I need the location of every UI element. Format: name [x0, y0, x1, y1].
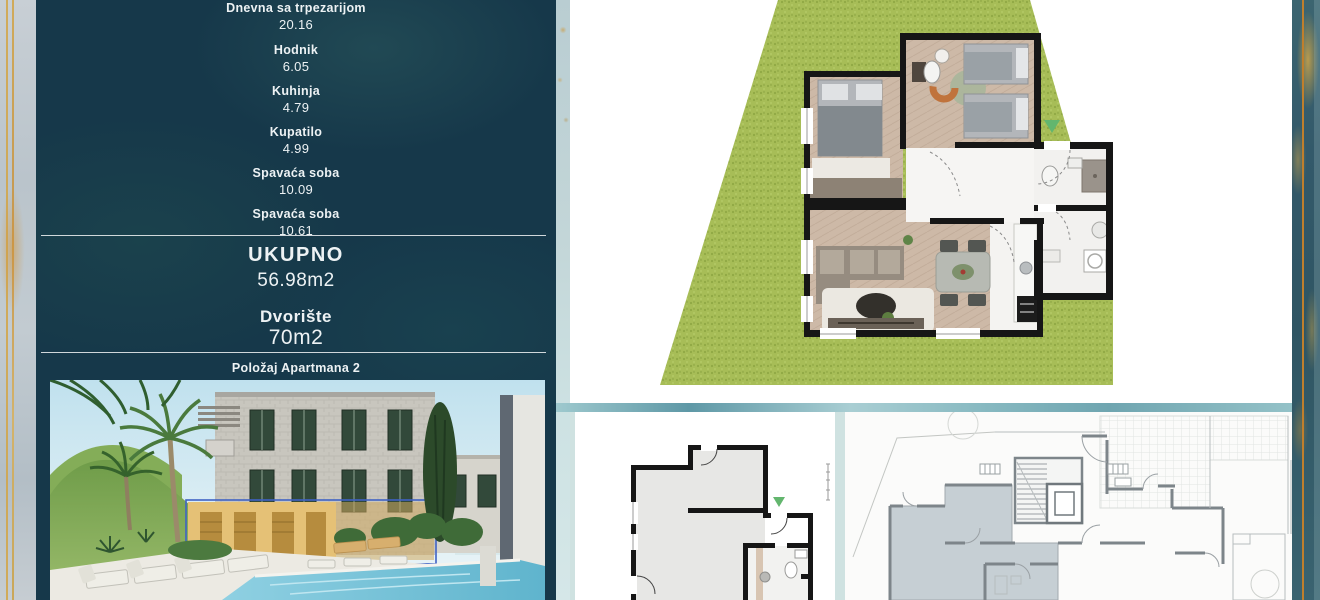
divider	[41, 235, 546, 236]
site-plan-panel	[570, 0, 1292, 403]
room-row: Spavaća soba 10.61	[36, 208, 556, 237]
background-texture-strip	[556, 0, 570, 600]
room-row: Spavaća soba 10.09	[36, 167, 556, 196]
room-area-value: 20.16	[36, 18, 556, 31]
total-value: 56.98m2	[36, 270, 556, 292]
room-label: Kupatilo	[36, 126, 556, 139]
shrub	[168, 540, 232, 560]
teal-divider-band	[556, 403, 1293, 412]
room-area-value: 10.09	[36, 183, 556, 196]
building-plan-panel	[845, 412, 1293, 600]
stair-core	[1015, 458, 1082, 523]
left-marble-border	[0, 0, 36, 600]
divider	[41, 352, 546, 353]
gold-line	[1302, 0, 1304, 600]
room-row: Kuhinja 4.79	[36, 85, 556, 114]
right-marble-border	[1292, 0, 1320, 600]
gold-flecks	[556, 0, 570, 160]
pool-pillar	[480, 546, 496, 586]
border-edge-highlight	[1314, 0, 1320, 600]
balcony	[206, 440, 234, 456]
room-label: Spavaća soba	[36, 167, 556, 180]
room-area-value: 6.05	[36, 60, 556, 73]
building-render-image	[50, 380, 545, 600]
room-label: Spavaća soba	[36, 208, 556, 221]
room-row: Kupatilo 4.99	[36, 126, 556, 155]
unit-outline-panel	[575, 412, 835, 600]
yard-value: 70m2	[36, 326, 556, 350]
total-label: UKUPNO	[36, 244, 556, 267]
room-area-value: 4.79	[36, 101, 556, 114]
marble-blotch	[0, 140, 36, 360]
room-area-value: 4.99	[36, 142, 556, 155]
position-caption: Položaj Apartmana 2	[36, 361, 556, 375]
room-label: Hodnik	[36, 44, 556, 57]
room-label: Dnevna sa trpezarijom	[36, 2, 556, 15]
brochure-page: Dnevna sa trpezarijom 20.16 Hodnik 6.05 …	[0, 0, 1320, 600]
room-label: Kuhinja	[36, 85, 556, 98]
room-row: Dnevna sa trpezarijom 20.16	[36, 2, 556, 31]
yard-label: Dvorište	[36, 307, 556, 327]
room-row: Hodnik 6.05	[36, 44, 556, 73]
apartment-info-panel: Dnevna sa trpezarijom 20.16 Hodnik 6.05 …	[36, 0, 556, 600]
